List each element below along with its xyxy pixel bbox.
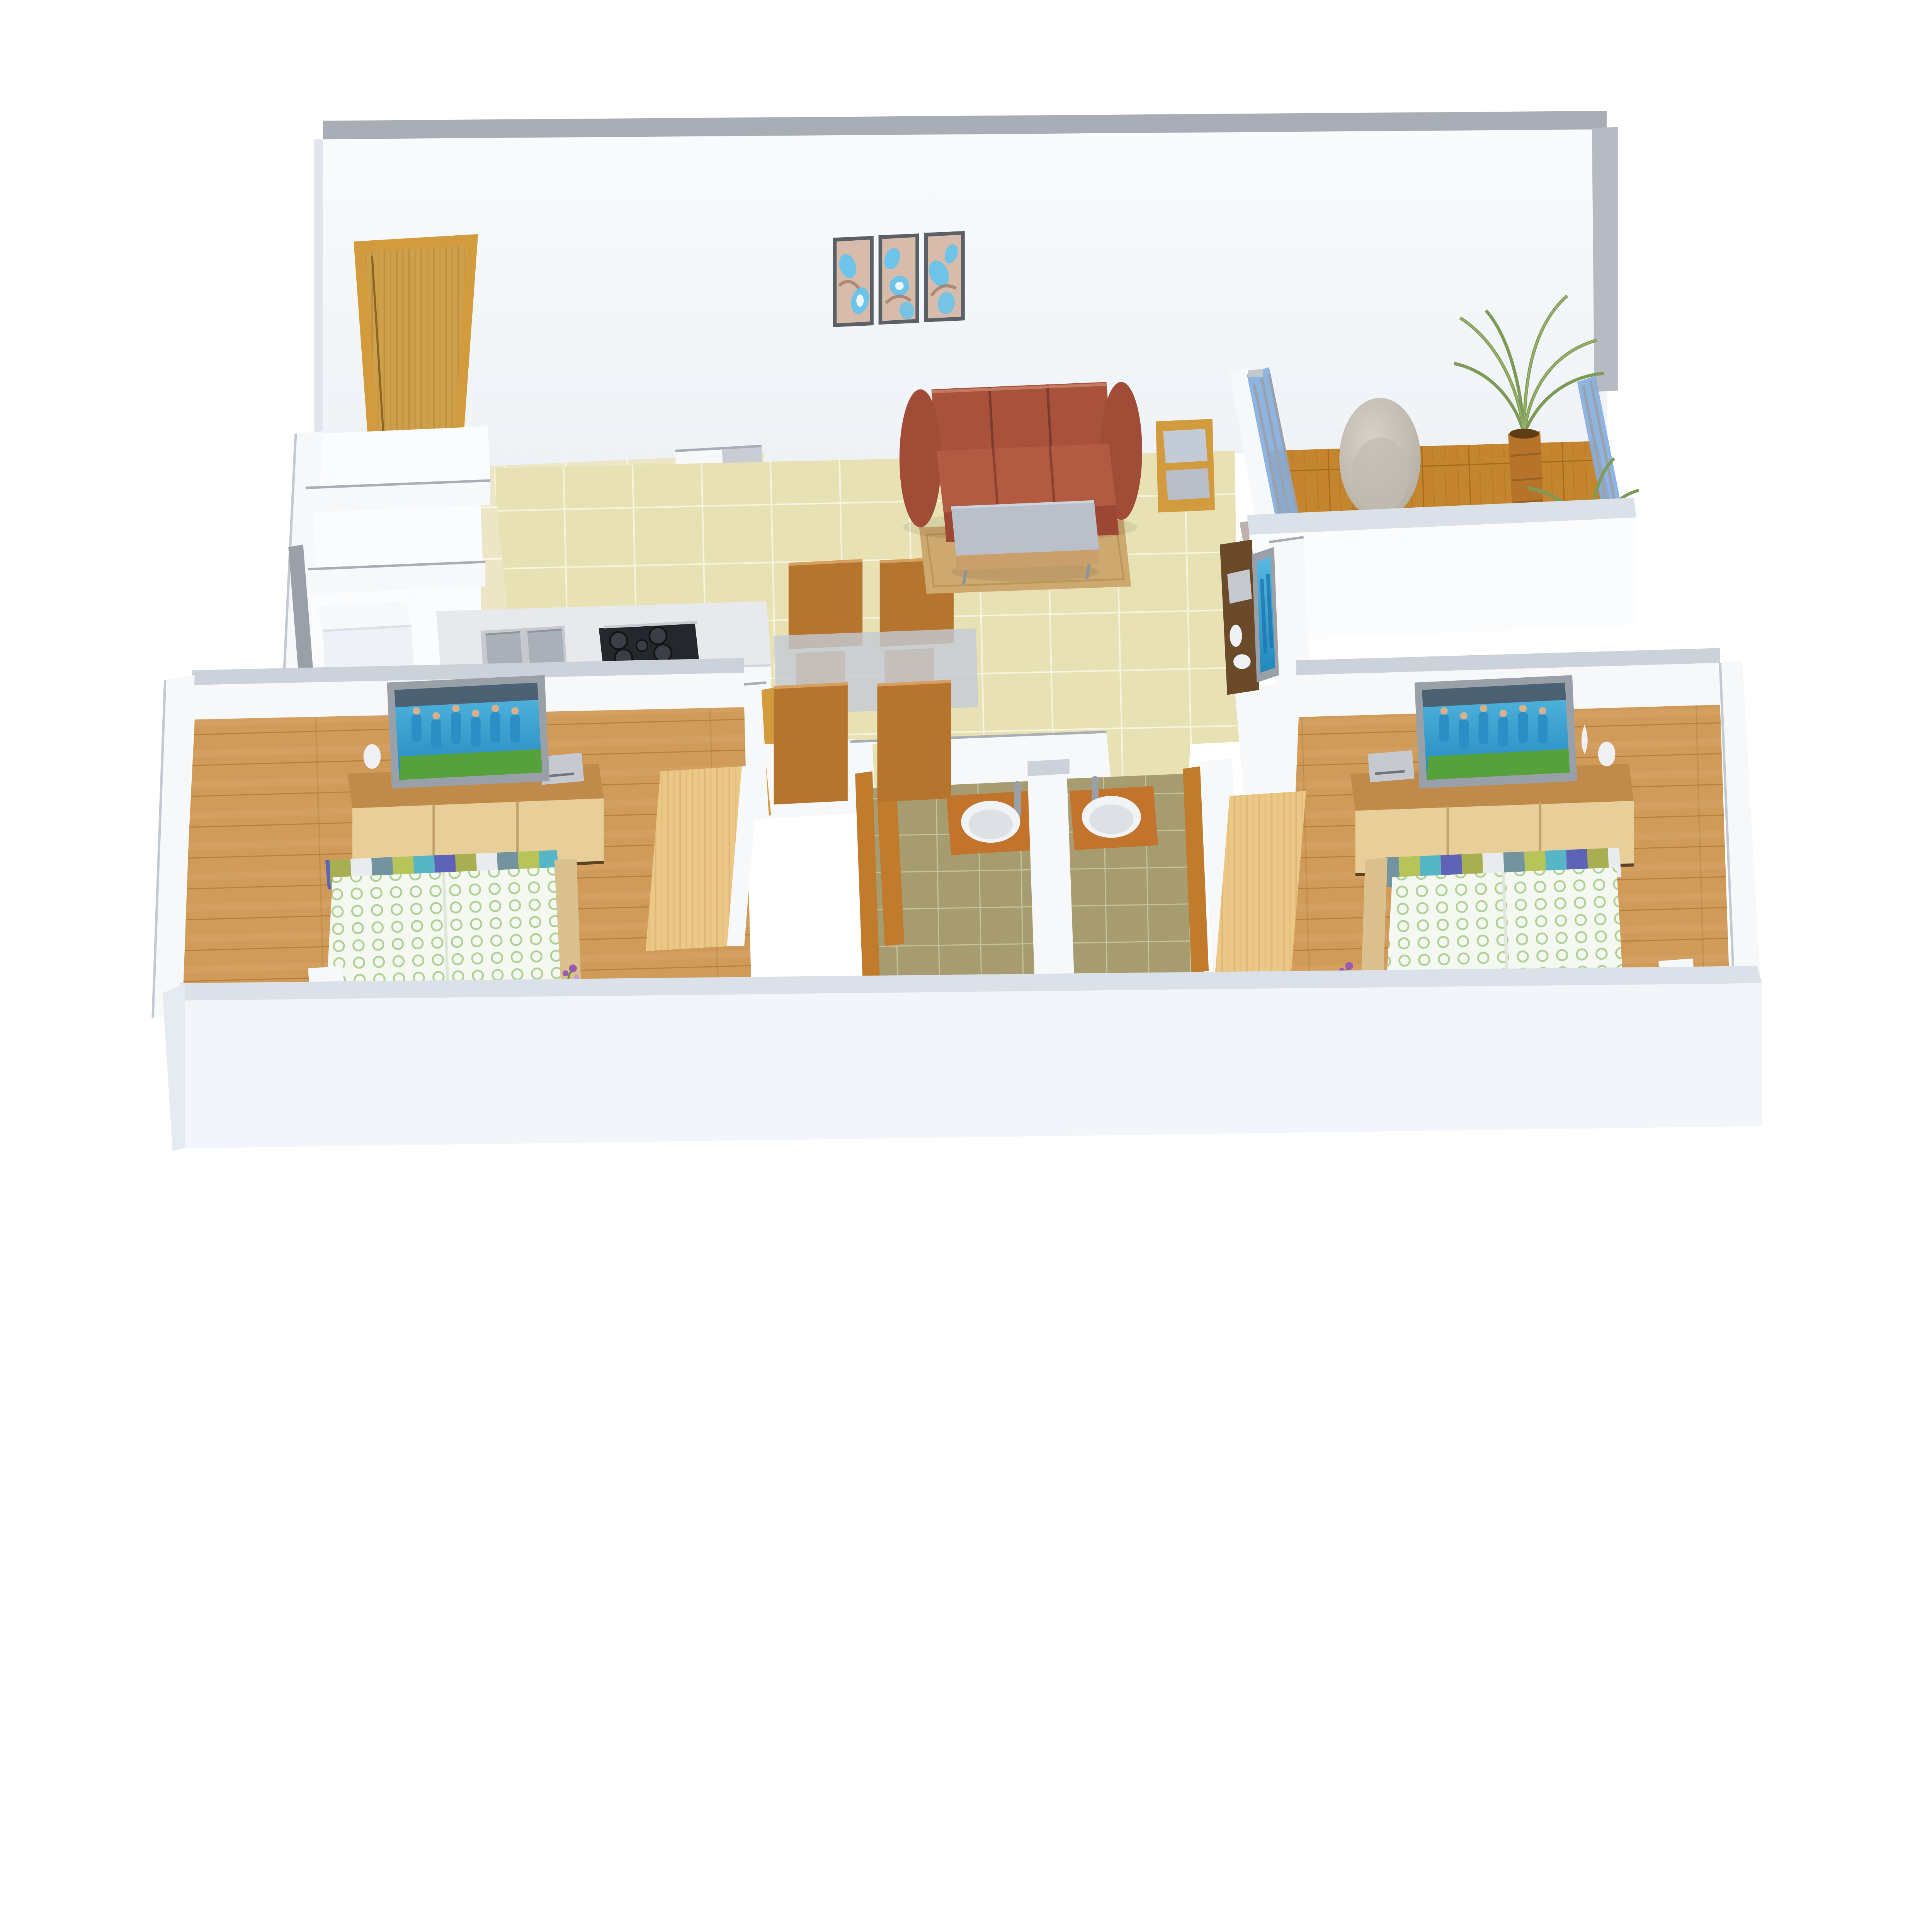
back-wall-left-edge — [314, 139, 323, 473]
bathroom-right — [1067, 766, 1209, 986]
mullion-cap — [1248, 369, 1263, 377]
floorplan-svg — [0, 0, 1932, 1366]
coffee-table-top — [951, 502, 1099, 556]
bathroom-left — [855, 771, 1037, 993]
plinth-front-face — [185, 983, 1762, 1148]
dvd-player — [1227, 569, 1252, 604]
coffee-table — [951, 502, 1099, 584]
dining-chair-back-4 — [877, 681, 951, 802]
dining-chair-back-3 — [774, 684, 848, 804]
art-panel-2 — [879, 233, 919, 325]
bedroom-left — [153, 658, 759, 1018]
floor-plinth — [163, 966, 1762, 1151]
floorplan-render — [0, 0, 1932, 1366]
entry-door-grain — [365, 245, 467, 435]
wall-art-triptych — [833, 231, 965, 327]
art-panel-1 — [833, 236, 874, 327]
white-jar — [1233, 654, 1251, 669]
dvd-player — [1368, 750, 1415, 782]
bath-divider-cap — [1027, 759, 1069, 776]
side-table-marble-shelf — [1166, 468, 1210, 500]
plinth-left-side — [163, 983, 185, 1151]
side-table-glass-shelf — [1163, 429, 1207, 463]
sofa-arm-left — [900, 389, 941, 527]
art-panel-3 — [924, 231, 965, 322]
chair-seat — [1352, 437, 1408, 514]
sofa-side-table — [1156, 419, 1215, 512]
egg-vase — [364, 744, 381, 769]
tv-left — [387, 675, 549, 788]
back-wall-right-cut — [1592, 127, 1618, 392]
egg-vase — [1598, 742, 1616, 767]
tv-right — [1415, 675, 1577, 788]
white-vase — [1230, 625, 1242, 647]
entrance-door — [354, 234, 478, 446]
bedroom-right — [1215, 648, 1762, 1013]
